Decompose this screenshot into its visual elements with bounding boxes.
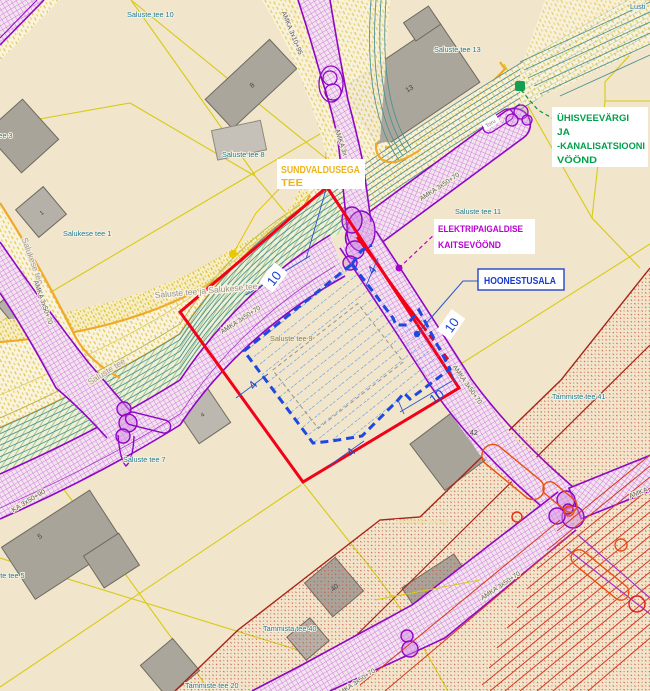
svg-text:Salukese tee 1: Salukese tee 1 xyxy=(63,229,111,238)
svg-text:Tammiste tee 43: Tammiste tee 43 xyxy=(395,517,449,526)
svg-text:Saluste tee 8: Saluste tee 8 xyxy=(222,150,265,159)
svg-text:Tammiste tee 20: Tammiste tee 20 xyxy=(185,681,239,690)
svg-text:SUNDVALDUSEGA: SUNDVALDUSEGA xyxy=(281,165,360,176)
svg-text:ELEKTRIPAIGALDISE: ELEKTRIPAIGALDISE xyxy=(438,224,523,234)
svg-text:Lusti: Lusti xyxy=(630,2,646,11)
svg-text:Tammista tee 40: Tammista tee 40 xyxy=(263,624,317,633)
svg-text:Saluste tee 10: Saluste tee 10 xyxy=(127,10,174,19)
svg-text:KAITSEVÖÖND: KAITSEVÖÖND xyxy=(438,240,501,250)
svg-text:JA: JA xyxy=(557,127,571,137)
svg-text:Tammiste tee 41: Tammiste tee 41 xyxy=(552,392,606,401)
svg-text:VÖÖND: VÖÖND xyxy=(557,155,598,165)
svg-text:Saluste tee 5: Saluste tee 5 xyxy=(0,571,25,580)
svg-text:Saluste tee 9: Saluste tee 9 xyxy=(270,334,313,343)
svg-text:Saluste tee 13: Saluste tee 13 xyxy=(434,45,481,54)
svg-text:ÜHISVEEVÄRGI: ÜHISVEEVÄRGI xyxy=(557,113,629,123)
svg-text:-KANALISATSIOONI: -KANALISATSIOONI xyxy=(557,141,645,151)
svg-text:Saluste tee 3: Saluste tee 3 xyxy=(0,131,13,140)
svg-text:42: 42 xyxy=(470,430,478,437)
svg-text:Saluste tee 11: Saluste tee 11 xyxy=(455,207,501,216)
svg-text:HOONESTUSALA: HOONESTUSALA xyxy=(484,276,556,287)
svg-text:TEE: TEE xyxy=(281,178,304,189)
svg-text:Saluste tee 7: Saluste tee 7 xyxy=(123,455,166,464)
